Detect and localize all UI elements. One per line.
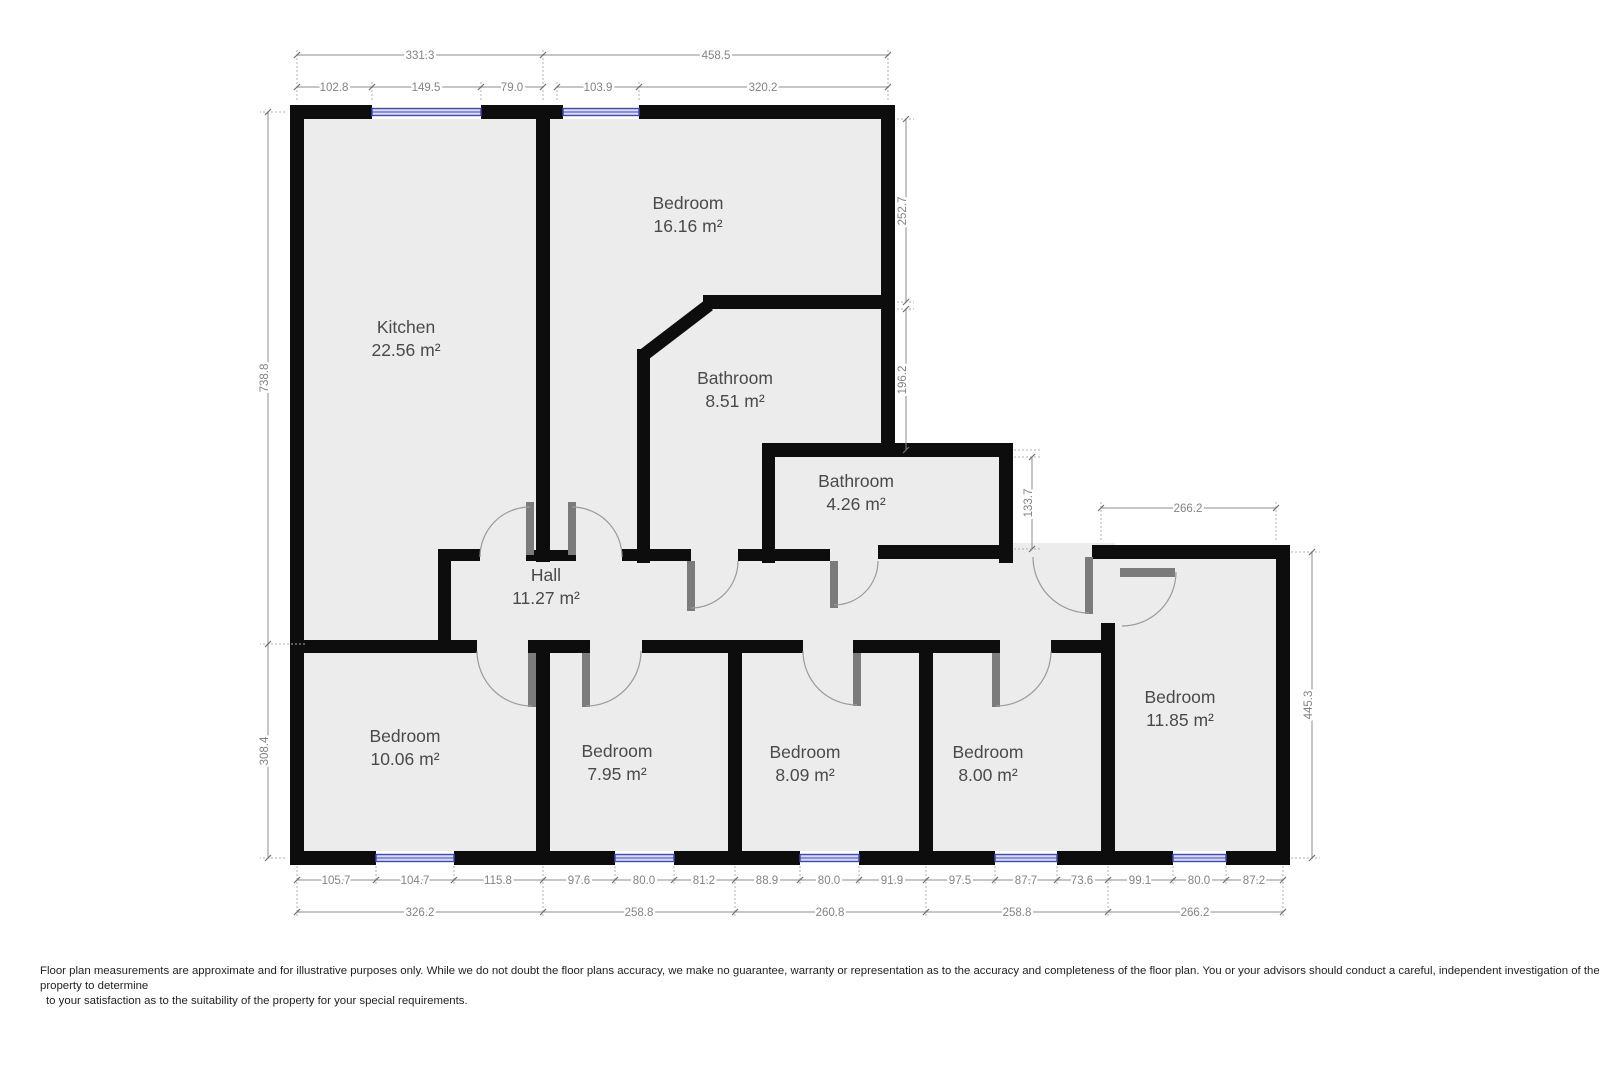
dim-bedroom1-overall-width: 458.5 bbox=[543, 50, 888, 62]
svg-text:266.2: 266.2 bbox=[1181, 907, 1210, 919]
window-bedroom5 bbox=[995, 851, 1057, 865]
door-leaf bbox=[1120, 568, 1175, 577]
svg-text:331.3: 331.3 bbox=[406, 50, 435, 62]
wall-outer-left bbox=[290, 105, 304, 865]
floor-plan: Kitchen 22.56 m² Bedroom 16.16 m² Bathro… bbox=[0, 0, 1620, 960]
svg-text:79.0: 79.0 bbox=[501, 82, 523, 94]
svg-text:97.6: 97.6 bbox=[568, 875, 590, 887]
svg-text:7.95 m²: 7.95 m² bbox=[587, 764, 646, 784]
wall-kitchen-bedroom2 bbox=[290, 640, 477, 653]
dim-kitchen-overall-width: 331.3 bbox=[297, 50, 543, 62]
wall-bedroom4-bedroom5 bbox=[919, 653, 933, 851]
wall-outer-right-lower bbox=[1276, 545, 1290, 865]
svg-text:Bathroom: Bathroom bbox=[697, 368, 773, 388]
svg-text:102.8: 102.8 bbox=[320, 82, 349, 94]
svg-text:196.2: 196.2 bbox=[897, 366, 909, 395]
svg-text:308.4: 308.4 bbox=[259, 736, 271, 765]
svg-text:103.9: 103.9 bbox=[584, 82, 613, 94]
window-bedroom2 bbox=[376, 851, 454, 865]
door-leaf bbox=[582, 653, 590, 707]
dim-left-lower-height: 308.4 bbox=[259, 644, 271, 858]
svg-text:80.0: 80.0 bbox=[633, 875, 655, 887]
svg-text:133.7: 133.7 bbox=[1023, 489, 1035, 518]
svg-text:105.7: 105.7 bbox=[322, 875, 351, 887]
svg-text:738.8: 738.8 bbox=[259, 364, 271, 393]
dim-top-detail: 102.8 149.5 79.0 103.9 320.2 bbox=[297, 82, 888, 94]
window-kitchen bbox=[372, 105, 481, 119]
dim-bedroom6-width: 266.2 bbox=[1101, 503, 1276, 515]
svg-text:Bedroom: Bedroom bbox=[1144, 687, 1215, 707]
svg-text:Bedroom: Bedroom bbox=[652, 193, 723, 213]
wall-bathroom1-left bbox=[637, 349, 650, 563]
dim-left-upper-height: 738.8 bbox=[259, 112, 271, 644]
svg-text:81.2: 81.2 bbox=[693, 875, 715, 887]
svg-text:258.8: 258.8 bbox=[1003, 907, 1032, 919]
door-leaf bbox=[568, 502, 576, 555]
svg-text:Bedroom: Bedroom bbox=[769, 742, 840, 762]
svg-text:Kitchen: Kitchen bbox=[377, 317, 435, 337]
wall-bedroom6-top bbox=[1092, 545, 1290, 559]
window-bedroom4 bbox=[800, 851, 859, 865]
svg-text:260.8: 260.8 bbox=[816, 907, 845, 919]
door-leaf bbox=[992, 653, 1000, 707]
svg-text:Bedroom: Bedroom bbox=[581, 741, 652, 761]
wall-bedroom6-left bbox=[1101, 623, 1115, 865]
svg-text:326.2: 326.2 bbox=[406, 907, 435, 919]
svg-text:258.8: 258.8 bbox=[625, 907, 654, 919]
svg-text:11.85 m²: 11.85 m² bbox=[1146, 710, 1214, 730]
svg-text:320.2: 320.2 bbox=[749, 82, 778, 94]
svg-text:445.3: 445.3 bbox=[1303, 691, 1315, 720]
dim-right-bathroom2-height: 133.7 bbox=[1023, 457, 1035, 549]
door-leaf bbox=[853, 653, 861, 706]
window-bedroom1 bbox=[563, 105, 639, 119]
disclaimer: Floor plan measurements are approximate … bbox=[40, 964, 1600, 1008]
svg-text:104.7: 104.7 bbox=[401, 875, 430, 887]
dim-right-bathroom1-height: 196.2 bbox=[897, 309, 909, 450]
svg-text:Bedroom: Bedroom bbox=[369, 726, 440, 746]
dim-right-bedroom1-height: 252.7 bbox=[897, 119, 909, 302]
door-leaf bbox=[526, 502, 534, 555]
svg-text:8.09 m²: 8.09 m² bbox=[775, 765, 834, 785]
wall-outer-right-upper bbox=[881, 105, 895, 457]
disclaimer-line-1: Floor plan measurements are approximate … bbox=[40, 964, 1600, 979]
dim-bottom-overall: 326.2 258.8 260.8 258.8 266.2 bbox=[297, 907, 1283, 919]
wall-bedroom2-bedroom3 bbox=[536, 653, 550, 851]
svg-text:88.9: 88.9 bbox=[756, 875, 778, 887]
disclaimer-line-2: property to determine bbox=[40, 979, 1600, 994]
floor-plan-page: Kitchen 22.56 m² Bedroom 16.16 m² Bathro… bbox=[0, 0, 1620, 1080]
svg-text:91.9: 91.9 bbox=[881, 875, 903, 887]
svg-text:252.7: 252.7 bbox=[897, 197, 909, 226]
door-leaf bbox=[830, 561, 838, 608]
door-leaf bbox=[1085, 557, 1093, 614]
wall-kitchen-bedroom1 bbox=[536, 105, 550, 562]
svg-text:97.5: 97.5 bbox=[949, 875, 971, 887]
svg-text:87.2: 87.2 bbox=[1243, 875, 1265, 887]
window-bedroom6 bbox=[1173, 851, 1226, 865]
dim-bottom-detail: 105.7 104.7 115.8 97.6 80.0 81.2 88.9 80… bbox=[297, 875, 1283, 887]
svg-text:80.0: 80.0 bbox=[818, 875, 840, 887]
wall-bathroom2-top bbox=[762, 443, 1013, 457]
wall-bedroom3-bedroom4 bbox=[728, 653, 742, 851]
wall-bedroom1-bathroom1 bbox=[703, 295, 881, 309]
svg-text:10.06 m²: 10.06 m² bbox=[370, 749, 439, 769]
wall-bathroom2-left bbox=[762, 443, 775, 563]
svg-text:8.00 m²: 8.00 m² bbox=[958, 765, 1017, 785]
svg-text:Bathroom: Bathroom bbox=[818, 471, 894, 491]
svg-text:80.0: 80.0 bbox=[1188, 875, 1210, 887]
svg-text:4.26 m²: 4.26 m² bbox=[826, 494, 885, 514]
svg-text:149.5: 149.5 bbox=[412, 82, 441, 94]
disclaimer-line-3: to your satisfaction as to the suitabili… bbox=[40, 994, 1600, 1009]
svg-text:99.1: 99.1 bbox=[1129, 875, 1151, 887]
svg-text:Hall: Hall bbox=[531, 565, 561, 585]
svg-text:458.5: 458.5 bbox=[702, 50, 731, 62]
svg-text:73.6: 73.6 bbox=[1071, 875, 1093, 887]
svg-text:87.7: 87.7 bbox=[1015, 875, 1037, 887]
svg-text:Bedroom: Bedroom bbox=[952, 742, 1023, 762]
svg-text:266.2: 266.2 bbox=[1174, 503, 1203, 515]
svg-text:8.51 m²: 8.51 m² bbox=[705, 391, 764, 411]
door-leaf bbox=[687, 561, 695, 611]
window-bedroom3 bbox=[615, 851, 674, 865]
svg-text:115.8: 115.8 bbox=[484, 875, 512, 887]
svg-text:16.16 m²: 16.16 m² bbox=[653, 216, 722, 236]
svg-text:11.27 m²: 11.27 m² bbox=[512, 588, 580, 608]
wall-hall-left bbox=[438, 549, 451, 653]
door-leaf bbox=[528, 653, 536, 707]
svg-text:22.56 m²: 22.56 m² bbox=[371, 340, 440, 360]
dim-bedroom6-height: 445.3 bbox=[1303, 552, 1315, 858]
